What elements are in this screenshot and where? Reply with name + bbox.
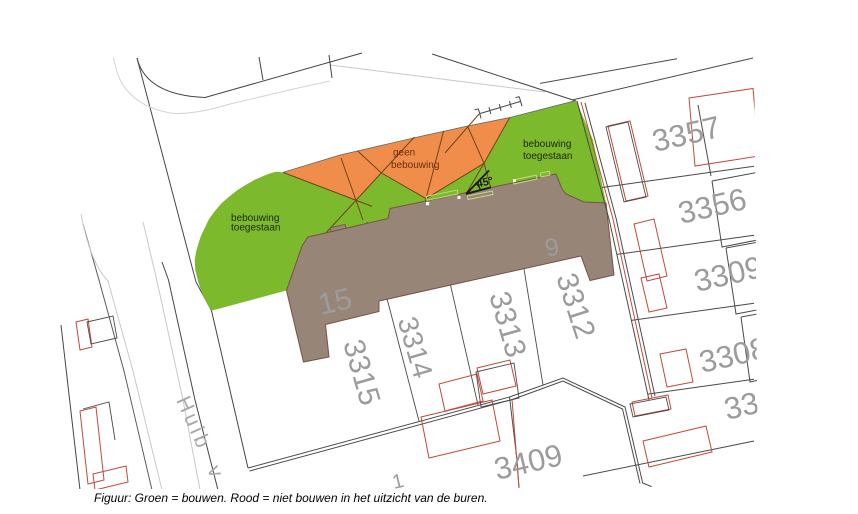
svg-text:bebouwing: bebouwing: [391, 160, 439, 171]
svg-text:toegestaan: toegestaan: [523, 151, 573, 162]
svg-text:Figuur: Groen = bouwen. Rood =: Figuur: Groen = bouwen. Rood = niet bouw…: [94, 491, 488, 505]
svg-text:Huib v: Huib v: [171, 393, 229, 484]
svg-text:3357: 3357: [649, 109, 724, 159]
svg-text:3308: 3308: [696, 330, 771, 380]
svg-text:3314: 3314: [392, 313, 439, 381]
svg-text:3315: 3315: [336, 336, 386, 409]
svg-text:geen: geen: [393, 148, 415, 159]
svg-text:3409: 3409: [491, 437, 566, 487]
svg-text:3309: 3309: [691, 249, 766, 299]
svg-text:3356: 3356: [675, 181, 750, 231]
svg-text:3313: 3313: [482, 288, 532, 361]
svg-text:toegestaan: toegestaan: [231, 223, 281, 234]
svg-text:3311: 3311: [721, 378, 794, 427]
svg-text:bebouwing: bebouwing: [523, 139, 571, 150]
